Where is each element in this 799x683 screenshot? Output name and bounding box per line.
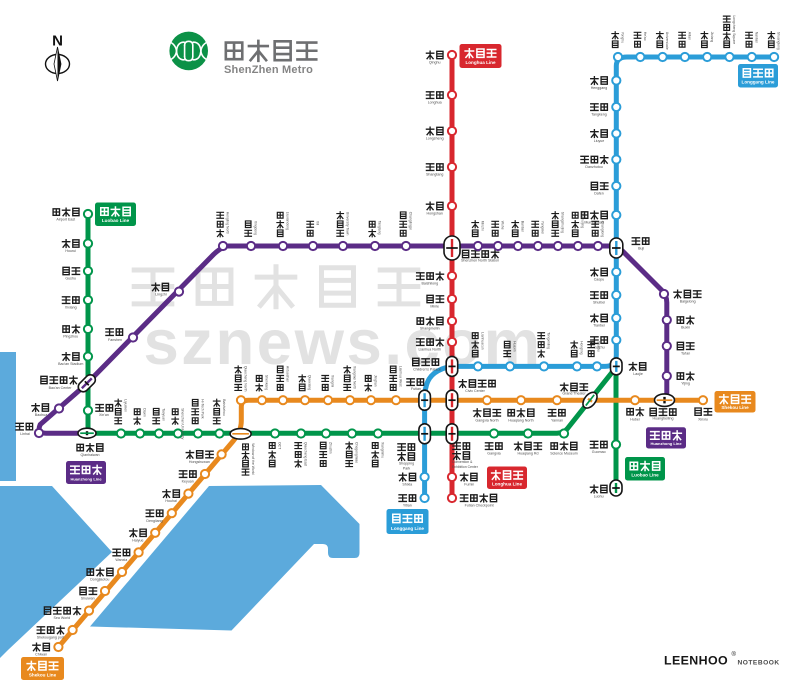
svg-text:®: ® <box>732 651 737 658</box>
svg-text:Children's Palace: Children's Palace <box>413 368 441 372</box>
svg-text:Jingtian: Jingtian <box>374 375 378 387</box>
svg-text:Hongshan: Hongshan <box>427 212 443 216</box>
svg-text:Xili: Xili <box>316 221 320 226</box>
svg-text:Science Museum: Science Museum <box>550 452 578 456</box>
svg-text:Gangxia: Gangxia <box>487 452 500 456</box>
svg-text:Yitian: Yitian <box>403 504 412 508</box>
svg-text:Tangkeng: Tangkeng <box>591 113 607 117</box>
svg-text:Shuibei: Shuibei <box>593 301 605 305</box>
svg-text:Longgang Line: Longgang Line <box>742 80 775 85</box>
svg-text:Huanzhong Line: Huanzhong Line <box>650 441 682 446</box>
svg-text:Baishizhou: Baishizhou <box>222 399 226 416</box>
svg-text:Wanxia: Wanxia <box>115 558 127 562</box>
svg-text:Shangtang: Shangtang <box>426 173 443 177</box>
svg-text:NOTEBOOK: NOTEBOOK <box>738 660 780 667</box>
svg-text:Minle: Minle <box>430 305 439 309</box>
svg-text:Daxin: Daxin <box>143 408 147 417</box>
svg-text:Huaxin: Huaxin <box>513 341 517 352</box>
svg-text:Gushu: Gushu <box>65 277 76 281</box>
svg-text:Shenzhen University: Shenzhen University <box>181 408 185 439</box>
svg-text:Shangshuijing: Shangshuijing <box>561 212 565 233</box>
svg-text:Xixiang: Xixiang <box>65 306 77 310</box>
svg-text:Airport East: Airport East <box>56 218 75 222</box>
svg-text:Shekou Line: Shekou Line <box>29 672 57 677</box>
svg-text:Bantian: Bantian <box>521 221 525 233</box>
svg-text:Bao'an Center: Bao'an Center <box>49 386 73 390</box>
svg-text:Baigelong: Baigelong <box>680 300 696 304</box>
svg-text:Changlong: Changlong <box>601 221 605 238</box>
svg-text:Lianhuacun: Lianhuacun <box>481 332 485 350</box>
svg-text:Haiyue: Haiyue <box>132 538 143 542</box>
svg-text:Laojie: Laojie <box>633 372 643 376</box>
svg-text:Luohu: Luohu <box>594 495 604 499</box>
svg-text:Xin'an: Xin'an <box>99 413 109 417</box>
svg-text:Qinghu: Qinghu <box>429 61 441 65</box>
svg-text:Huaqiang North: Huaqiang North <box>508 418 533 422</box>
svg-text:Jixiang: Jixiang <box>710 32 714 43</box>
svg-text:Luobao Line: Luobao Line <box>102 218 130 223</box>
svg-text:Shaibu: Shaibu <box>597 341 601 352</box>
svg-text:Longhua: Longhua <box>428 101 442 105</box>
svg-text:N: N <box>52 33 63 50</box>
svg-text:Minzhi: Minzhi <box>481 221 485 231</box>
svg-text:Gangxia North: Gangxia North <box>475 418 498 422</box>
svg-text:Lianhua West: Lianhua West <box>399 366 403 387</box>
svg-text:Futian: Futian <box>411 387 421 391</box>
svg-text:Shenzhen North Station: Shenzhen North Station <box>461 259 499 263</box>
svg-text:Caopu: Caopu <box>594 278 605 282</box>
svg-text:Lingzhi: Lingzhi <box>155 293 167 297</box>
svg-text:LEENHOO: LEENHOO <box>664 654 728 668</box>
svg-text:Xiangmihu: Xiangmihu <box>381 442 385 458</box>
svg-text:Liuxiandong: Liuxiandong <box>286 212 290 230</box>
svg-text:Window of the World: Window of the World <box>251 443 255 474</box>
svg-text:Keyuan: Keyuan <box>182 480 194 484</box>
svg-text:Liyumen: Liyumen <box>124 399 128 412</box>
svg-text:Bao'an Stadium: Bao'an Stadium <box>58 362 83 366</box>
svg-text:Park: Park <box>403 467 411 471</box>
svg-text:Longgang Line: Longgang Line <box>391 526 424 531</box>
svg-text:Xiashuijing: Xiashuijing <box>581 212 585 229</box>
svg-text:Lianhua North: Lianhua North <box>419 348 442 352</box>
svg-text:Xingdong: Xingdong <box>254 221 258 235</box>
svg-text:Henggang: Henggang <box>591 86 608 90</box>
svg-text:Shangmeilin: Shangmeilin <box>420 327 440 331</box>
svg-text:Zhuzilin: Zhuzilin <box>329 442 333 454</box>
svg-text:Tanglang: Tanglang <box>378 221 382 235</box>
svg-text:Shuanglong: Shuanglong <box>777 32 781 50</box>
svg-text:Pingzhou: Pingzhou <box>63 335 78 339</box>
svg-text:Huaqiang Rd: Huaqiang Rd <box>518 452 539 456</box>
svg-text:Universiade: Universiade <box>665 32 669 50</box>
svg-text:Exhibition Center: Exhibition Center <box>452 465 479 469</box>
svg-text:Shenkang: Shenkang <box>265 375 269 390</box>
svg-text:Chiwan: Chiwan <box>35 653 47 657</box>
svg-text:ShenZhen Metro: ShenZhen Metro <box>224 64 313 76</box>
svg-text:Shixia: Shixia <box>402 483 412 487</box>
svg-text:Dongjiaotou: Dongjiaotou <box>90 578 109 582</box>
svg-text:Baohua: Baohua <box>35 413 47 417</box>
svg-text:Yangmei: Yangmei <box>541 221 545 234</box>
svg-text:Hongling North: Hongling North <box>226 212 230 235</box>
svg-text:OCT: OCT <box>278 442 282 449</box>
svg-text:Longhua Line: Longhua Line <box>492 481 523 486</box>
svg-text:Dengliang: Dengliang <box>146 519 162 523</box>
svg-text:Hi-Tech Park: Hi-Tech Park <box>201 399 205 419</box>
svg-text:Antuoshan: Antuoshan <box>286 366 290 382</box>
svg-text:Qiaocheng East: Qiaocheng East <box>304 442 308 466</box>
svg-text:Danzhutou: Danzhutou <box>585 165 602 169</box>
svg-text:Huangbeiling: Huangbeiling <box>653 417 674 421</box>
svg-text:Wuhe: Wuhe <box>501 221 505 230</box>
svg-text:Xiangmei North: Xiangmei North <box>353 366 357 389</box>
svg-text:Shuiwan: Shuiwan <box>81 597 95 601</box>
svg-text:Convention &: Convention & <box>452 460 473 464</box>
svg-text:Fanshen: Fanshen <box>108 338 122 342</box>
svg-text:Longhua Line: Longhua Line <box>465 60 496 65</box>
svg-text:Xiangmi: Xiangmi <box>331 375 335 387</box>
svg-text:Qiaocheng North: Qiaocheng North <box>244 366 248 392</box>
svg-text:Buxin: Buxin <box>681 326 690 330</box>
svg-text:Sea World: Sea World <box>54 616 71 620</box>
svg-text:Hubei: Hubei <box>630 417 640 421</box>
svg-text:Liuyue: Liuyue <box>594 139 605 143</box>
svg-text:Civic Center: Civic Center <box>465 389 485 393</box>
svg-text:Hongling: Hongling <box>580 341 584 354</box>
svg-text:University Town: University Town <box>346 212 350 236</box>
svg-text:Qiaoxiang: Qiaoxiang <box>308 375 312 390</box>
svg-text:Tongxinling: Tongxinling <box>547 332 551 349</box>
svg-text:Fumin: Fumin <box>464 483 474 487</box>
svg-text:Tai'an: Tai'an <box>681 352 690 356</box>
svg-text:Shekougang port: Shekougang port <box>37 636 64 640</box>
svg-text:Xinxiu: Xinxiu <box>698 417 708 421</box>
svg-text:Shopping: Shopping <box>399 462 414 466</box>
svg-text:Luobao Line: Luobao Line <box>631 473 659 478</box>
svg-text:Chegongmiao: Chegongmiao <box>355 442 359 463</box>
svg-text:Huanzhong Line: Huanzhong Line <box>70 476 102 481</box>
svg-text:Shekou Line: Shekou Line <box>721 405 749 410</box>
svg-text:Longcheng Square: Longcheng Square <box>732 16 736 45</box>
svg-text:Taoyuan: Taoyuan <box>162 408 166 421</box>
svg-text:Buji: Buji <box>638 247 644 251</box>
svg-text:Ailian: Ailian <box>688 32 692 40</box>
svg-text:Yijing: Yijing <box>681 382 690 386</box>
svg-text:Grand Theater: Grand Theater <box>562 391 586 395</box>
svg-text:Longsheng: Longsheng <box>426 137 444 141</box>
svg-text:Nanlian: Nanlian <box>754 32 758 44</box>
svg-text:Yannan: Yannan <box>551 418 563 422</box>
svg-text:Linhai: Linhai <box>20 432 30 436</box>
svg-text:Guomao: Guomao <box>592 450 606 454</box>
svg-text:Qianhaiwan: Qianhaiwan <box>81 453 100 457</box>
svg-text:Hongshuwan: Hongshuwan <box>189 460 210 464</box>
svg-text:Futian Checkpoint: Futian Checkpoint <box>465 504 494 508</box>
svg-text:Changlingpi: Changlingpi <box>409 212 413 230</box>
svg-text:Dafen: Dafen <box>594 192 604 196</box>
svg-text:Baishilong: Baishilong <box>422 282 439 286</box>
svg-text:Hourui: Hourui <box>65 249 76 253</box>
svg-text:He'ao: He'ao <box>643 32 647 41</box>
svg-text:Yonghu: Yonghu <box>621 32 625 43</box>
svg-text:Houhai: Houhai <box>165 499 177 503</box>
svg-text:Tianbei: Tianbei <box>593 324 605 328</box>
